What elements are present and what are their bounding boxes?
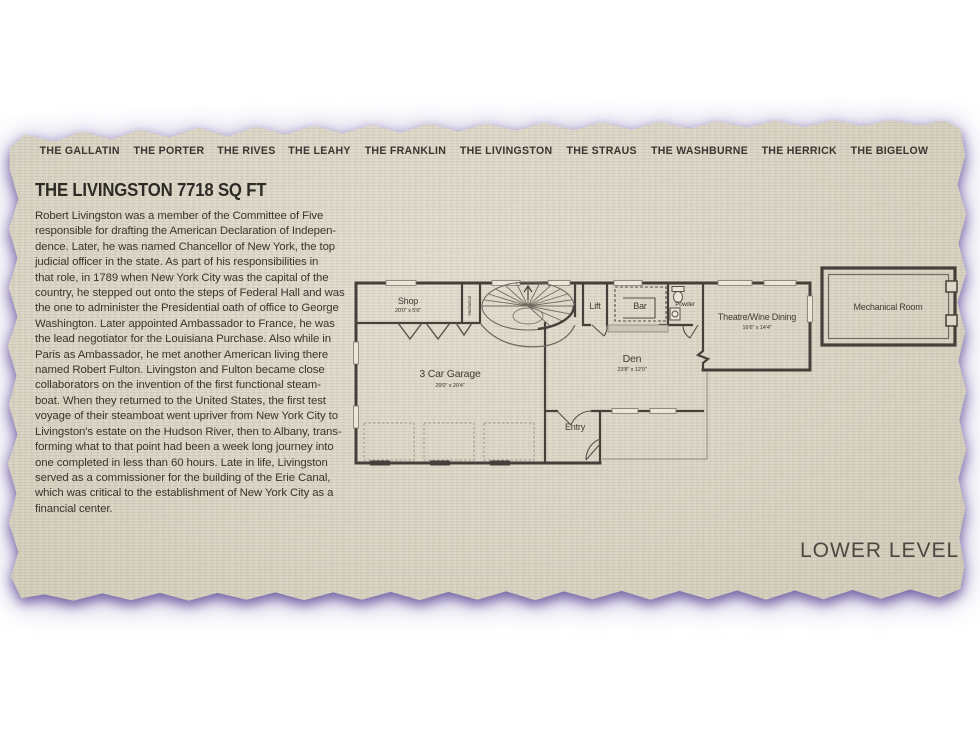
- car-bays: [364, 423, 534, 460]
- room-label-garage: 3 Car Garage: [419, 368, 481, 380]
- floor-plan: Shop 20'0" x 5'6" Mechanical Lift Bar Po…: [352, 256, 964, 468]
- nav-item-herrick[interactable]: THE HERRICK: [762, 145, 837, 157]
- room-dims-theatre: 16'6" x 14'4": [742, 325, 771, 331]
- room-label-powder: Powder: [675, 302, 694, 308]
- spiral-stairs-icon: [480, 282, 575, 347]
- nav-item-rives[interactable]: THE RIVES: [217, 145, 275, 157]
- room-dims-garage: 29'0" x 20'4": [435, 383, 464, 389]
- room-label-bar: Bar: [633, 301, 647, 311]
- nav-item-washburne[interactable]: THE WASHBURNE: [651, 145, 748, 157]
- room-label-lift: Lift: [589, 301, 601, 311]
- toilet-icon: [672, 287, 684, 303]
- history-paragraph: Robert Livingston was a member of the Co…: [35, 209, 345, 517]
- nav-item-leahy[interactable]: THE LEAHY: [289, 145, 351, 157]
- room-dims-shop: 20'0" x 5'6": [395, 308, 421, 314]
- room-label-shop: Shop: [398, 296, 418, 306]
- sink-icon: [670, 308, 680, 320]
- nav-item-franklin[interactable]: THE FRANKLIN: [365, 145, 446, 157]
- page: THE GALLATIN THE PORTER THE RIVES THE LE…: [0, 0, 980, 735]
- nav-item-straus[interactable]: THE STRAUS: [566, 145, 636, 157]
- nav-item-livingston[interactable]: THE LIVINGSTON: [460, 145, 552, 157]
- door-swing-lift: [592, 325, 607, 336]
- room-label-den: Den: [623, 353, 642, 365]
- page-title: THE LIVINGSTON 7718 SQ FT: [35, 180, 266, 201]
- terrace-outline: [602, 372, 707, 459]
- door-swings-shop: [398, 323, 472, 339]
- door-swing-powder: [683, 325, 698, 338]
- room-dims-den: 23'8" x 12'0": [617, 367, 646, 373]
- room-label-mechanical-closet: Mechanical: [467, 296, 472, 315]
- room-label-entry: Entry: [565, 422, 586, 432]
- nav-item-porter[interactable]: THE PORTER: [133, 145, 204, 157]
- door-swings-entry: [557, 411, 600, 460]
- room-label-theatre: Theatre/Wine Dining: [718, 312, 796, 322]
- nav-item-gallatin[interactable]: THE GALLATIN: [40, 145, 120, 157]
- level-label: LOWER LEVEL: [800, 539, 959, 563]
- nav-item-bigelow[interactable]: THE BIGELOW: [851, 145, 929, 157]
- model-nav: THE GALLATIN THE PORTER THE RIVES THE LE…: [38, 145, 930, 157]
- room-label-mechanical-room: Mechanical Room: [853, 302, 922, 312]
